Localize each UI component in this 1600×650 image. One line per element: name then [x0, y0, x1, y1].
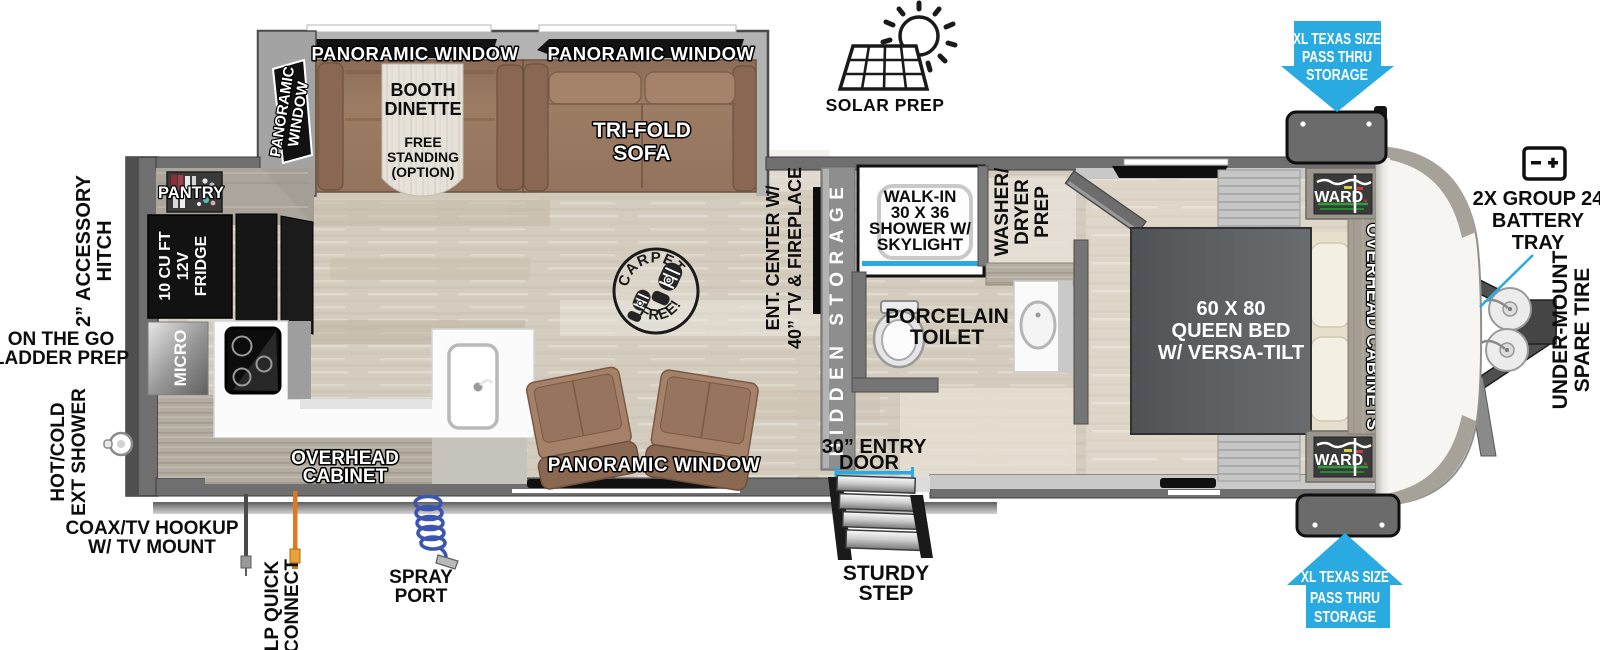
svg-text:SOFA: SOFA — [613, 142, 670, 165]
svg-text:DRYER: DRYER — [1012, 179, 1033, 245]
svg-text:DOOR: DOOR — [839, 452, 900, 474]
svg-text:QUEEN BED: QUEEN BED — [1172, 320, 1291, 342]
svg-text:WASHER/: WASHER/ — [992, 167, 1013, 256]
svg-text:60 X 80: 60 X 80 — [1197, 298, 1266, 320]
svg-text:HIDDEN STORAGE: HIDDEN STORAGE — [827, 180, 848, 457]
svg-text:STEP: STEP — [859, 582, 914, 605]
svg-text:PANORAMIC WINDOW: PANORAMIC WINDOW — [311, 43, 518, 64]
svg-text:LADDER PREP: LADDER PREP — [0, 348, 129, 369]
svg-text:TOILET: TOILET — [910, 326, 984, 349]
svg-text:PANORAMIC WINDOW: PANORAMIC WINDOW — [548, 455, 760, 476]
svg-text:FRIDGE: FRIDGE — [193, 235, 210, 296]
svg-text:PASS THRU: PASS THRU — [1310, 590, 1380, 607]
svg-text:XL TEXAS SIZE: XL TEXAS SIZE — [1293, 31, 1381, 48]
svg-text:SPARE TIRE: SPARE TIRE — [1571, 268, 1594, 392]
svg-text:2X GROUP 24: 2X GROUP 24 — [1473, 188, 1600, 210]
svg-text:(OPTION): (OPTION) — [392, 164, 455, 180]
svg-text:ON THE GO: ON THE GO — [8, 329, 115, 350]
svg-text:STORAGE: STORAGE — [1306, 67, 1368, 84]
svg-text:CABINET: CABINET — [303, 466, 388, 487]
svg-text:XL TEXAS SIZE: XL TEXAS SIZE — [1301, 569, 1389, 586]
svg-text:SOLAR PREP: SOLAR PREP — [826, 95, 945, 115]
svg-text:UNDER-MOUNT: UNDER-MOUNT — [1549, 251, 1572, 410]
svg-text:BATTERY: BATTERY — [1492, 210, 1585, 232]
svg-text:MICRO: MICRO — [171, 330, 190, 387]
svg-text:CONNECT: CONNECT — [282, 559, 303, 650]
svg-text:DINETTE: DINETTE — [384, 99, 461, 119]
svg-text:10 CU FT: 10 CU FT — [157, 231, 174, 301]
svg-text:STORAGE: STORAGE — [1314, 609, 1376, 626]
svg-text:PANTRY: PANTRY — [158, 184, 224, 202]
svg-text:EXT SHOWER: EXT SHOWER — [69, 388, 90, 516]
svg-text:HOT/COLD: HOT/COLD — [48, 402, 69, 501]
svg-text:HITCH: HITCH — [94, 220, 116, 281]
svg-text:40” TV & FIREPLACE: 40” TV & FIREPLACE — [785, 167, 805, 349]
svg-text:WARD.: WARD. — [1314, 189, 1367, 206]
svg-text:WARD.: WARD. — [1314, 452, 1367, 469]
svg-text:COAX/TV HOOKUP: COAX/TV HOOKUP — [65, 518, 238, 539]
svg-text:12V: 12V — [175, 251, 192, 280]
svg-text:LP QUICK: LP QUICK — [262, 561, 283, 650]
svg-text:BOOTH: BOOTH — [391, 80, 456, 100]
svg-text:2” ACCESSORY: 2” ACCESSORY — [73, 174, 95, 327]
svg-text:TRI-FOLD: TRI-FOLD — [593, 119, 691, 142]
svg-text:PANORAMIC WINDOW: PANORAMIC WINDOW — [547, 43, 754, 64]
svg-text:W/ TV MOUNT: W/ TV MOUNT — [88, 537, 216, 558]
svg-text:SPRAY: SPRAY — [389, 567, 453, 588]
svg-text:SKYLIGHT: SKYLIGHT — [877, 235, 964, 254]
svg-text:STANDING: STANDING — [387, 149, 459, 165]
svg-text:PASS THRU: PASS THRU — [1302, 49, 1372, 66]
svg-text:FREE: FREE — [404, 134, 441, 150]
svg-text:W/ VERSA-TILT: W/ VERSA-TILT — [1158, 342, 1304, 364]
svg-text:PREP: PREP — [1032, 186, 1053, 238]
svg-text:PORCELAIN: PORCELAIN — [885, 305, 1009, 328]
svg-text:PORT: PORT — [395, 586, 448, 607]
svg-text:ENT. CENTER W/: ENT. CENTER W/ — [763, 185, 783, 330]
